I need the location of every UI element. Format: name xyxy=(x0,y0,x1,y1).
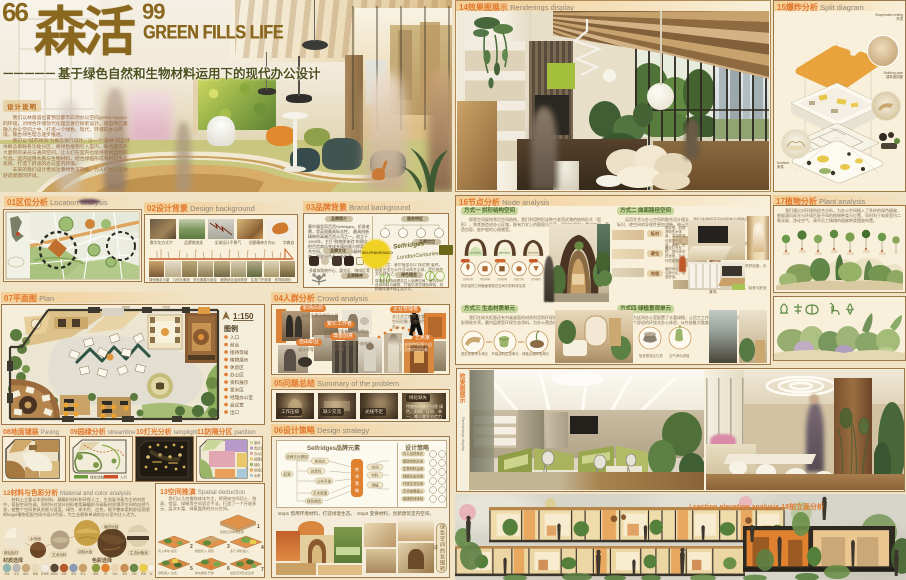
svg-text:绿植: 绿植 xyxy=(371,483,379,488)
svg-text:绿化流线: 绿化流线 xyxy=(90,475,105,480)
svg-text:9600: 9600 xyxy=(122,306,130,310)
svg-text:前台: 前台 xyxy=(230,342,240,349)
svg-text:办公区: 办公区 xyxy=(230,372,244,379)
svg-text:4: 4 xyxy=(261,545,264,551)
svg-text:接待: 接待 xyxy=(254,440,261,445)
svg-text:木质材料: 木质材料 xyxy=(480,277,491,281)
svg-text:接待等候: 接待等候 xyxy=(230,349,249,356)
svg-text:绿色理念: 绿色理念 xyxy=(307,499,322,504)
svg-text:休闲区: 休闲区 xyxy=(254,468,262,473)
svg-text:金属: 金属 xyxy=(71,572,77,575)
svg-text:会议室: 会议室 xyxy=(254,446,262,451)
svg-text:2: 2 xyxy=(190,544,193,550)
svg-text:7200: 7200 xyxy=(162,306,170,310)
svg-text:材料: 材料 xyxy=(371,473,379,478)
svg-text:入口: 入口 xyxy=(230,335,240,341)
svg-text:体验式: 体验式 xyxy=(315,459,326,464)
svg-text:艺术装置植入: 艺术装置植入 xyxy=(403,489,424,494)
svg-text:起源: 起源 xyxy=(283,472,291,477)
svg-text:原始空间体块生成: 原始空间体块生成 xyxy=(220,529,244,534)
svg-text:绿化: 绿化 xyxy=(254,462,261,467)
svg-text:体块重组 开放: 体块重组 开放 xyxy=(195,570,214,575)
svg-text:吸音罩感应灯具: 吸音罩感应灯具 xyxy=(639,353,663,358)
svg-text:人行: 人行 xyxy=(120,475,128,480)
svg-text:健康舒适体验: 健康舒适体验 xyxy=(403,496,424,501)
svg-text:明黄: 明黄 xyxy=(141,572,147,575)
svg-text:植物展示: 植物展示 xyxy=(230,357,249,364)
svg-text:办公区: 办公区 xyxy=(254,451,262,456)
svg-text:空间: 空间 xyxy=(371,465,379,470)
svg-text:藤编: 藤编 xyxy=(33,572,39,575)
svg-text:原木: 原木 xyxy=(80,572,86,575)
svg-text:策: 策 xyxy=(355,480,359,486)
svg-text:楼层切入 错层: 楼层切入 错层 xyxy=(195,548,214,553)
svg-text:生态树脂板: 生态树脂板 xyxy=(130,550,148,555)
svg-text:赤陶: 赤陶 xyxy=(61,572,67,575)
svg-text:空气净化绿植: 空气净化绿植 xyxy=(669,353,690,358)
svg-text:多元 绿化插入: 多元 绿化插入 xyxy=(230,548,249,553)
svg-text:乳胶漆: 乳胶漆 xyxy=(41,572,49,575)
svg-text:略: 略 xyxy=(355,487,359,493)
svg-text:米白: 米白 xyxy=(112,572,118,575)
svg-text:资料展示: 资料展示 xyxy=(230,379,249,386)
svg-text:光照引导: 光照引导 xyxy=(514,277,525,281)
svg-text:空间围合: 空间围合 xyxy=(531,277,542,281)
svg-text:绿植生态系统: 绿植生态系统 xyxy=(403,474,424,479)
svg-text:艺术涂料: 艺术涂料 xyxy=(52,552,67,557)
svg-text:创意性: 创意性 xyxy=(311,469,322,474)
svg-text:转: 转 xyxy=(355,466,359,472)
svg-text:橙: 橙 xyxy=(104,572,107,575)
svg-text:水泥: 水泥 xyxy=(14,572,20,575)
svg-text:品牌文化基因: 品牌文化基因 xyxy=(286,454,308,459)
svg-text:胡桃木: 胡桃木 xyxy=(51,572,59,575)
svg-text:译: 译 xyxy=(355,473,359,479)
svg-text:1: 1 xyxy=(257,524,260,530)
svg-text:生物材料运用: 生物材料运用 xyxy=(403,466,423,471)
svg-text:1:150: 1:150 xyxy=(233,312,254,321)
svg-text:景水区: 景水区 xyxy=(230,387,244,394)
svg-text:草绿: 草绿 xyxy=(131,572,137,575)
svg-text:休息区: 休息区 xyxy=(230,364,244,371)
svg-text:几何结构: 几何结构 xyxy=(497,277,508,281)
svg-text:开放交流空间: 开放交流空间 xyxy=(403,481,424,486)
svg-text:绿植融入 生态: 绿植融入 生态 xyxy=(158,570,177,575)
svg-text:水吧: 水吧 xyxy=(254,473,261,478)
svg-text:自然元素: 自然元素 xyxy=(463,277,474,281)
svg-text:出口: 出口 xyxy=(230,409,240,416)
svg-text:5: 5 xyxy=(190,566,193,572)
svg-text:胡桃木板: 胡桃木板 xyxy=(78,549,93,554)
svg-text:塑造有机形态: 塑造有机形态 xyxy=(403,459,424,464)
svg-text:木饰面: 木饰面 xyxy=(30,536,41,541)
svg-text:硬包板材: 硬包板材 xyxy=(4,550,19,555)
svg-text:橡木: 橡木 xyxy=(23,572,29,575)
svg-text:白: 白 xyxy=(150,572,153,575)
svg-text:公共开放: 公共开放 xyxy=(317,479,332,484)
svg-text:浅棕: 浅棕 xyxy=(122,572,128,575)
svg-text:亚麻: 亚麻 xyxy=(4,572,10,575)
svg-text:最终空间形态生成: 最终空间形态生成 xyxy=(230,570,254,575)
svg-text:编织地毯: 编织地毯 xyxy=(104,524,119,529)
svg-text:经理办公室: 经理办公室 xyxy=(230,394,253,401)
svg-text:橄榄: 橄榄 xyxy=(93,572,99,575)
svg-text:经理室: 经理室 xyxy=(254,457,262,462)
svg-text:切入体块 抬高: 切入体块 抬高 xyxy=(158,548,177,553)
svg-text:图例: 图例 xyxy=(224,324,238,333)
svg-text:会议室: 会议室 xyxy=(230,402,244,409)
svg-text:艺术氛围: 艺术氛围 xyxy=(313,491,328,496)
svg-text:引入自然采光: 引入自然采光 xyxy=(403,451,424,456)
svg-text:7: 7 xyxy=(261,567,264,573)
